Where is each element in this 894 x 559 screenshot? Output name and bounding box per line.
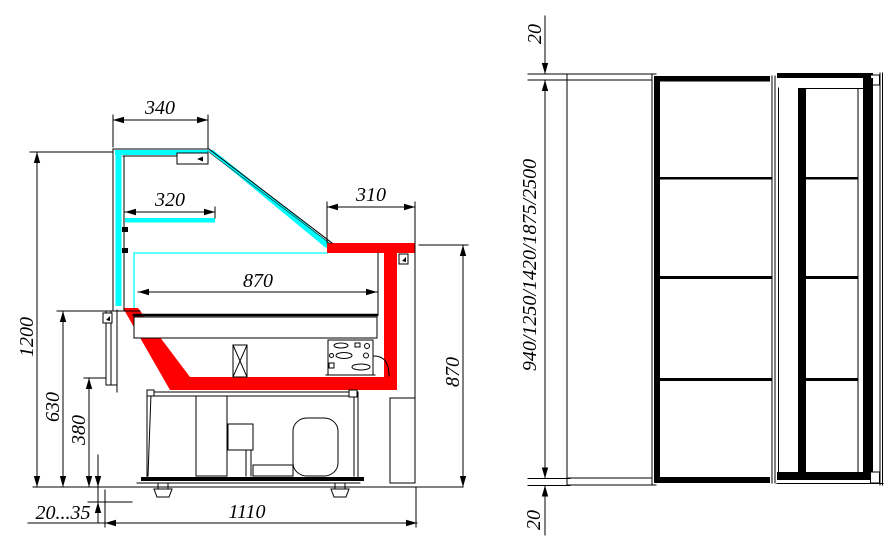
dim-overall-height: 1200 bbox=[16, 317, 38, 357]
shelf-bracket-upper bbox=[122, 227, 128, 232]
canopy-lamp-box bbox=[177, 153, 208, 164]
compressor bbox=[293, 418, 338, 476]
display-case-technical-drawing: 340 320 310 870 1110 20...35 1200 630 38… bbox=[0, 0, 894, 559]
mid-bottom-bar bbox=[660, 477, 770, 483]
shelf-glass bbox=[125, 218, 215, 223]
worktop-red bbox=[327, 243, 415, 253]
right-bottom-bar bbox=[777, 472, 871, 480]
deck-slab bbox=[134, 317, 377, 338]
dim-top-gap: 20 bbox=[524, 24, 546, 44]
right-top-bar bbox=[777, 73, 873, 78]
mid-shelf-line-3 bbox=[660, 378, 772, 381]
dim-canopy-width: 340 bbox=[144, 97, 175, 119]
foot-left bbox=[154, 489, 172, 497]
dim-interior-width: 870 bbox=[243, 270, 273, 292]
clip-right bbox=[349, 390, 357, 397]
mid-top-bar bbox=[660, 76, 770, 82]
foot-right bbox=[331, 489, 349, 497]
rear-fastener-box bbox=[399, 254, 408, 264]
control-box bbox=[228, 424, 253, 450]
well-rear-wall-red bbox=[384, 253, 397, 378]
right-shelf-line-1 bbox=[806, 177, 858, 180]
right-left-post bbox=[798, 88, 806, 472]
dim-shelf-width: 320 bbox=[154, 189, 185, 211]
dim-base-height: 380 bbox=[68, 415, 90, 446]
shelf-bracket-lower bbox=[122, 248, 128, 253]
dim-worktop-height: 870 bbox=[442, 357, 464, 387]
clip-left bbox=[147, 390, 154, 396]
front-fastener-box bbox=[103, 313, 112, 323]
mid-shelf-line-1 bbox=[660, 177, 772, 180]
compartment-divider-panel bbox=[196, 396, 227, 476]
right-shelf-line-3 bbox=[806, 378, 858, 381]
dim-bottom-gap: 20 bbox=[523, 510, 545, 530]
mid-left-post bbox=[654, 76, 660, 483]
right-shelf-line-2 bbox=[806, 276, 858, 279]
rear-lower-panel bbox=[390, 398, 415, 483]
dim-case-lengths: 940/1250/1420/1875/2500 bbox=[519, 159, 541, 371]
drawing-canvas: 340 320 310 870 1110 20...35 1200 630 38… bbox=[0, 0, 894, 559]
dim-front-panel-height: 630 bbox=[42, 392, 64, 422]
front-vertical-glass bbox=[116, 150, 122, 306]
dim-base-width: 1110 bbox=[228, 501, 265, 523]
tray bbox=[253, 465, 293, 476]
mid-shelf-line-2 bbox=[660, 276, 772, 279]
right-thick-post bbox=[863, 78, 873, 480]
dim-leg-adjust-range: 20...35 bbox=[36, 502, 91, 524]
right-bottom-notch bbox=[871, 472, 880, 483]
dim-worktop-width: 310 bbox=[355, 184, 386, 206]
